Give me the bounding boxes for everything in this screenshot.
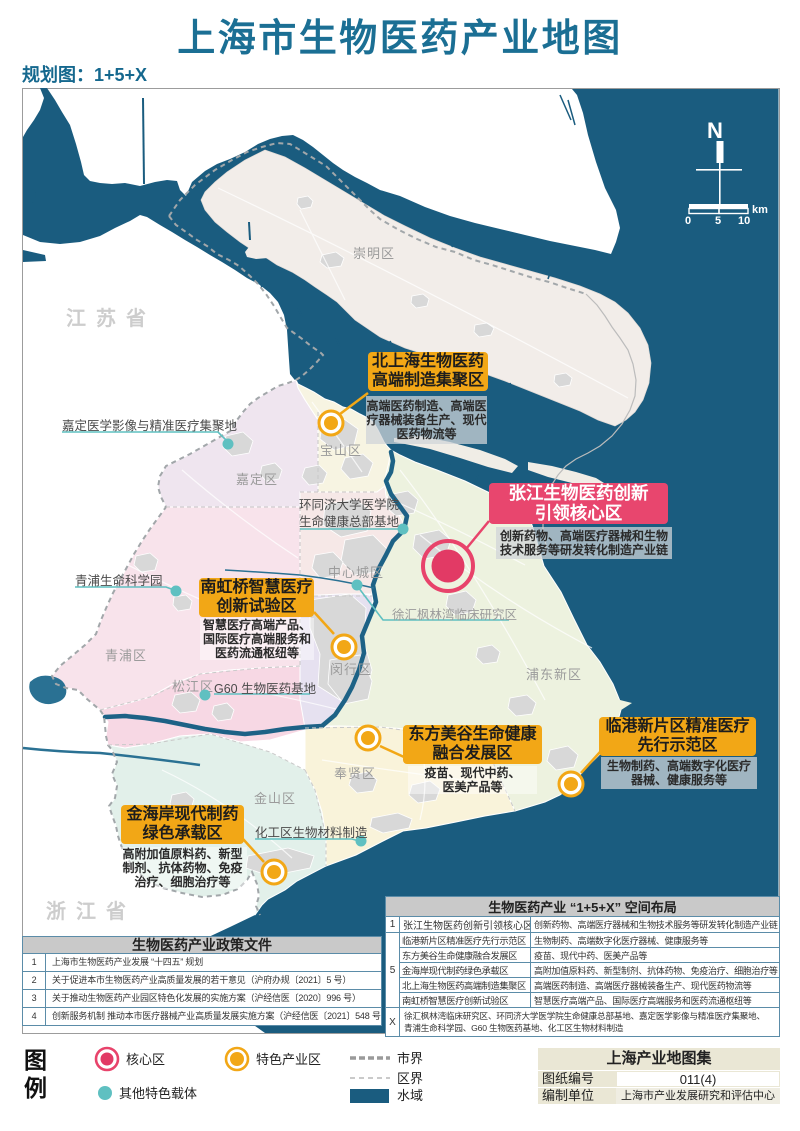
svg-text:0: 0 xyxy=(685,215,691,227)
svg-text:崇明区: 崇明区 xyxy=(353,246,395,261)
svg-text:江苏省: 江苏省 xyxy=(66,307,156,330)
svg-text:km: km xyxy=(752,204,768,216)
svg-text:核心区: 核心区 xyxy=(126,1052,165,1067)
svg-text:奉贤区: 奉贤区 xyxy=(334,766,376,781)
svg-text:市界: 市界 xyxy=(397,1051,423,1066)
svg-text:中心城区: 中心城区 xyxy=(328,565,384,580)
svg-text:10: 10 xyxy=(738,215,750,227)
svg-text:N: N xyxy=(707,118,723,143)
svg-text:闵行区: 闵行区 xyxy=(330,662,372,677)
svg-text:嘉定区: 嘉定区 xyxy=(236,472,278,487)
svg-text:5: 5 xyxy=(715,215,721,227)
svg-text:浙江省: 浙江省 xyxy=(46,899,136,923)
svg-text:区界: 区界 xyxy=(397,1071,423,1086)
svg-text:青浦区: 青浦区 xyxy=(105,648,147,663)
svg-text:浦东新区: 浦东新区 xyxy=(526,667,582,682)
svg-text:水域: 水域 xyxy=(397,1088,423,1103)
svg-text:宝山区: 宝山区 xyxy=(320,443,362,458)
svg-text:特色产业区: 特色产业区 xyxy=(256,1052,321,1067)
svg-text:金山区: 金山区 xyxy=(254,791,296,806)
svg-text:其他特色载体: 其他特色载体 xyxy=(119,1086,197,1101)
